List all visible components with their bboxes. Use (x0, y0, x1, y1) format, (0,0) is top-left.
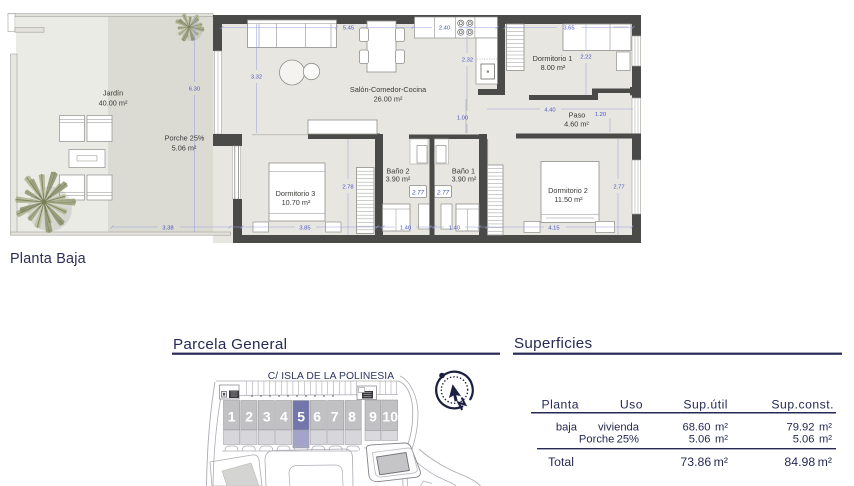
svg-text:Porche 25%: Porche 25% (579, 434, 639, 446)
svg-text:Uso: Uso (620, 398, 643, 412)
svg-text:Sup.útil: Sup.útil (683, 398, 728, 412)
svg-text:9: 9 (369, 409, 377, 425)
svg-text:4.15: 4.15 (548, 226, 559, 232)
svg-text:4.40: 4.40 (544, 108, 555, 114)
svg-text:5.06 m²: 5.06 m² (172, 144, 197, 153)
svg-text:3.90 m²: 3.90 m² (386, 175, 411, 184)
svg-text:1.00: 1.00 (457, 116, 468, 122)
svg-text:Dormitorio 3: Dormitorio 3 (276, 189, 316, 198)
svg-text:3: 3 (263, 409, 271, 425)
svg-text:2.22: 2.22 (580, 55, 591, 61)
svg-text:10.70 m²: 10.70 m² (282, 198, 311, 207)
svg-text:5: 5 (297, 409, 305, 425)
svg-text:8: 8 (348, 409, 356, 425)
svg-text:26.00 m²: 26.00 m² (374, 95, 403, 104)
svg-text:40.00 m²: 40.00 m² (99, 99, 128, 108)
svg-text:Jardín: Jardín (103, 89, 123, 98)
svg-text:7: 7 (331, 409, 339, 425)
svg-text:5.45: 5.45 (343, 26, 354, 32)
svg-text:2.77: 2.77 (613, 185, 624, 191)
svg-text:3.90 m²: 3.90 m² (452, 175, 477, 184)
svg-text:1.40: 1.40 (400, 226, 411, 232)
svg-text:Porche 25%: Porche 25% (165, 134, 205, 143)
svg-text:Dormitorio 1: Dormitorio 1 (533, 54, 573, 63)
svg-text:8.00 m²: 8.00 m² (541, 63, 566, 72)
svg-text:79.92 m²: 79.92 m² (786, 422, 832, 434)
svg-text:Sup.const.: Sup.const. (771, 398, 834, 412)
svg-text:68.60 m²: 68.60 m² (682, 422, 728, 434)
svg-text:Dormitorio 2: Dormitorio 2 (548, 186, 588, 195)
svg-text:baja: baja (556, 422, 578, 434)
svg-text:3.38: 3.38 (162, 226, 173, 232)
svg-text:vivienda: vivienda (598, 422, 640, 434)
svg-text:3.32: 3.32 (251, 75, 262, 81)
svg-text:10: 10 (382, 409, 398, 425)
svg-text:Total: Total (548, 455, 574, 469)
svg-text:1: 1 (228, 409, 236, 425)
svg-text:5.06 m²: 5.06 m² (793, 434, 833, 446)
svg-text:6: 6 (313, 409, 321, 425)
svg-text:Planta: Planta (541, 398, 579, 412)
svg-text:5.06 m²: 5.06 m² (689, 434, 729, 446)
svg-text:Salón-Comedor-Cocina: Salón-Comedor-Cocina (350, 85, 427, 94)
svg-text:2.77: 2.77 (436, 190, 450, 197)
svg-text:C/ ISLA DE LA POLINESIA: C/ ISLA DE LA POLINESIA (268, 371, 395, 382)
svg-text:Paso: Paso (569, 111, 586, 120)
svg-text:2.32: 2.32 (462, 58, 473, 64)
svg-text:Parcela General: Parcela General (173, 336, 287, 353)
svg-text:2.77: 2.77 (411, 190, 425, 197)
svg-text:Superficies: Superficies (514, 335, 593, 352)
svg-text:11.50 m²: 11.50 m² (554, 195, 583, 204)
svg-text:2.40: 2.40 (439, 26, 450, 32)
svg-text:Planta Baja: Planta Baja (10, 251, 86, 267)
svg-text:3.65: 3.65 (563, 26, 574, 32)
svg-text:84.98 m²: 84.98 m² (784, 455, 832, 469)
svg-text:73.86 m²: 73.86 m² (680, 455, 728, 469)
svg-text:1.20: 1.20 (595, 112, 606, 118)
svg-text:2: 2 (245, 409, 253, 425)
svg-text:2.78: 2.78 (342, 185, 353, 191)
svg-text:4: 4 (280, 409, 288, 425)
svg-text:3.85: 3.85 (299, 226, 310, 232)
svg-text:6.30: 6.30 (189, 87, 200, 93)
svg-text:4.60 m²: 4.60 m² (564, 120, 589, 129)
svg-text:1.40: 1.40 (449, 226, 460, 232)
